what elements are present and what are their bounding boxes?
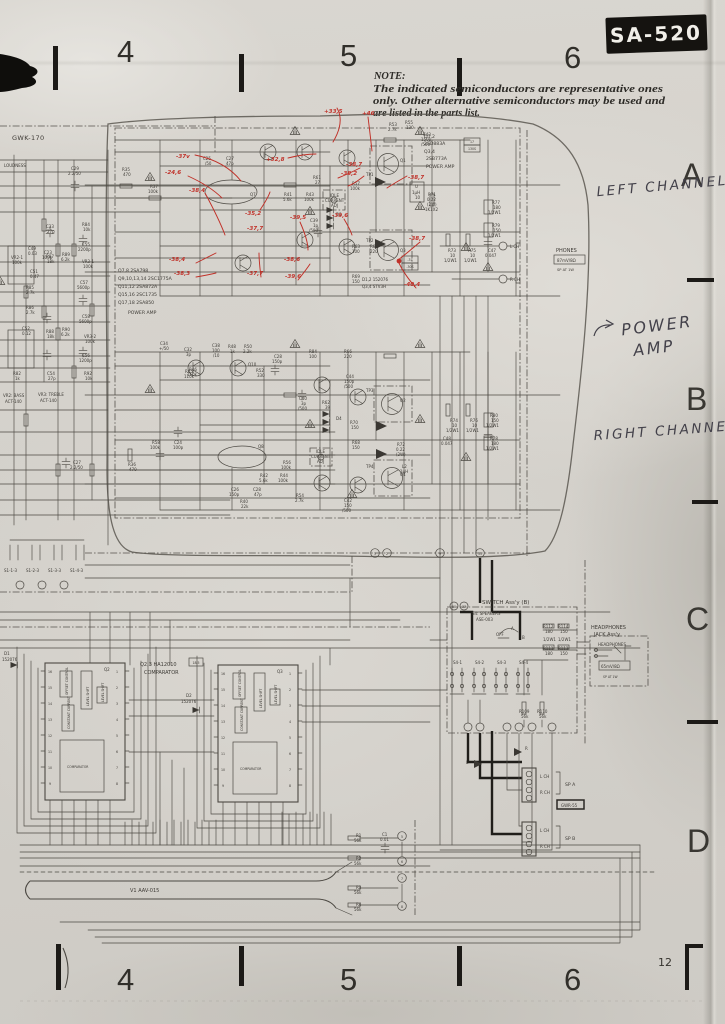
- parts-line: POWER AMP: [128, 310, 157, 316]
- svg-text:(2W): (2W): [396, 452, 406, 457]
- wire-r-label: R: [525, 746, 528, 751]
- svg-text:Q10: Q10: [248, 362, 257, 367]
- svg-text:10: 10: [221, 768, 225, 772]
- ruler-bottom-4: 4: [117, 962, 134, 997]
- svg-text:1/2W1: 1/2W1: [466, 428, 479, 433]
- svg-text:2.2k: 2.2k: [243, 349, 252, 354]
- svg-text:-38,3: -38,3: [174, 271, 190, 277]
- loudness-label: LOUDNESS: [4, 163, 26, 168]
- model-badge: SA-520: [605, 14, 707, 54]
- svg-text:56k: 56k: [354, 838, 362, 843]
- output-phones-linework: [440, 242, 585, 845]
- phones-lch: L CH: [510, 244, 519, 249]
- svg-text:15: 15: [221, 688, 225, 692]
- svg-text:0.047: 0.047: [485, 253, 497, 258]
- svg-text:150: 150: [352, 445, 360, 450]
- phones-title: PHONES: [556, 248, 577, 254]
- switch-pos-a: A: [511, 626, 514, 631]
- svg-text:56k: 56k: [354, 890, 362, 895]
- switch-pos-b: B: [522, 635, 525, 640]
- ref-box-text: 17: [470, 140, 474, 144]
- svg-text:11: 11: [221, 752, 225, 756]
- svg-text:S4-4: S4-4: [519, 660, 529, 665]
- svg-text:27p: 27p: [47, 229, 55, 234]
- d2-part: 152076: [181, 699, 197, 704]
- svg-text:56k: 56k: [354, 861, 362, 866]
- svg-text:1/2W1: 1/2W1: [486, 446, 499, 451]
- ref-box-text: -37: [407, 258, 412, 262]
- svg-text:47p: 47p: [254, 492, 262, 497]
- svg-text:6.2k: 6.2k: [61, 332, 70, 337]
- svg-text:220: 220: [344, 354, 352, 359]
- svg-text:U: U: [415, 184, 418, 189]
- svg-text:D4: D4: [336, 416, 342, 421]
- svg-text:100k: 100k: [150, 445, 161, 450]
- comparator-ref: 18.5: [192, 661, 199, 665]
- display-label: V1 AAV-015: [130, 888, 159, 894]
- parts-line: Q9,10,13,14 2SC1775A: [118, 276, 173, 282]
- svg-text:1/2W1: 1/2W1: [543, 637, 556, 642]
- svg-text:S1-2-3: S1-2-3: [26, 568, 40, 573]
- parts-line: Q17,18 2SA850: [118, 300, 154, 306]
- ic-q2-label: Q2: [104, 667, 110, 672]
- svg-text:9: 9: [222, 784, 224, 788]
- svg-text:/500: /500: [309, 228, 318, 233]
- svg-text:11: 11: [48, 750, 52, 754]
- svg-text:1K1X2: 1K1X2: [425, 207, 438, 212]
- spa-label: SP A: [565, 782, 576, 788]
- hp-title1: HEADPHONES: [591, 625, 626, 631]
- svg-text:100k: 100k: [85, 339, 96, 344]
- parts-line: Q11,12 2SA872A: [118, 284, 158, 290]
- out-block-line: 2SB773A: [426, 156, 448, 162]
- schematic-canvas: 4 5 6 SA-520 4 5 6 12 A B C D: [0, 0, 725, 1024]
- comparator-title1: Q2,3 HA12010: [140, 662, 177, 668]
- svg-text:180: 180: [545, 629, 553, 634]
- svg-text:100: 100: [352, 249, 360, 254]
- svg-text:18k: 18k: [47, 259, 55, 264]
- svg-text:TP1: TP1: [365, 172, 374, 177]
- switch-sub1: S4: SPEAKERS: [472, 611, 501, 616]
- svg-text:39: 39: [325, 405, 331, 410]
- note-line2: only. Other alternative semiconductors m…: [373, 96, 666, 107]
- svg-text:S4-2: S4-2: [475, 660, 485, 665]
- svg-text:TP2: TP2: [365, 238, 374, 243]
- diode-block-line2: Q3,4 STV3H: [362, 284, 386, 289]
- svg-text:4: 4: [289, 720, 291, 724]
- svg-text:S4-3: S4-3: [497, 660, 507, 665]
- svg-text:12: 12: [221, 736, 225, 740]
- svg-text:100k: 100k: [278, 478, 289, 483]
- switch-pos-off: OFF: [496, 632, 504, 637]
- svg-text:-38,4: -38,4: [169, 257, 185, 263]
- svg-text:ADJ: ADJ: [317, 459, 324, 464]
- svg-text:100k: 100k: [281, 465, 292, 470]
- svg-text:9: 9: [49, 782, 51, 786]
- phones-rch: R CH: [510, 277, 520, 282]
- svg-text:+32,8: +32,8: [266, 157, 285, 163]
- d1-ref: D1: [4, 651, 10, 656]
- svg-text:6: 6: [289, 752, 291, 756]
- margin-letter-d: D: [687, 823, 710, 859]
- svg-text:2.2/50: 2.2/50: [68, 171, 81, 176]
- svg-text:56k: 56k: [521, 714, 529, 719]
- svg-text:Q2: Q2: [400, 398, 406, 403]
- svg-text:5: 5: [289, 736, 291, 740]
- svg-text:-37,7: -37,7: [247, 271, 263, 277]
- hp-level: 65mV/8Ω: [601, 664, 620, 669]
- svg-text:/500: /500: [344, 384, 353, 389]
- svg-text:-40,4: -40,4: [404, 282, 420, 288]
- svg-text:110k: 110k: [187, 372, 198, 377]
- svg-text:1k: 1k: [15, 376, 21, 381]
- svg-text:TP4: TP4: [365, 464, 374, 469]
- out-block-line: Q3,4: [424, 149, 435, 155]
- svg-text:/500: /500: [298, 406, 307, 411]
- svg-text:0.12: 0.12: [22, 331, 31, 336]
- svg-text:7: 7: [401, 877, 403, 881]
- ic-block-label: COMPARATOR: [67, 765, 89, 769]
- svg-text:Q3: Q3: [400, 248, 406, 253]
- handwritten-arrow: [594, 320, 613, 336]
- svg-text:+/50: +/50: [159, 346, 169, 351]
- svg-text:56k: 56k: [539, 714, 547, 719]
- svg-text:Q4: Q4: [400, 472, 406, 477]
- svg-text:220: 220: [370, 249, 378, 254]
- ruler-top-6: 6: [564, 40, 581, 75]
- svg-text:470: 470: [123, 172, 131, 177]
- svg-text:1/2W1: 1/2W1: [486, 423, 499, 428]
- ic-block-label: CONSTANT CURRENT: [67, 696, 71, 729]
- svg-text:7: 7: [116, 766, 118, 770]
- svg-text:10k: 10k: [85, 376, 93, 381]
- svg-text:8: 8: [116, 782, 118, 786]
- svg-text:-39,6: -39,6: [332, 213, 348, 219]
- svg-text:1/2W1: 1/2W1: [558, 637, 571, 642]
- vr2-label: VR2: BASS: [3, 393, 25, 398]
- svg-text:5: 5: [116, 734, 118, 738]
- svg-text:150: 150: [351, 425, 359, 430]
- svg-text:2: 2: [289, 688, 291, 692]
- svg-text:/500: /500: [342, 508, 351, 513]
- svg-text:6.2k: 6.2k: [61, 257, 70, 262]
- parts-line: Q7,8 2SA798: [118, 268, 148, 274]
- svg-text:1/2W1: 1/2W1: [464, 258, 477, 263]
- svg-text:22k: 22k: [241, 504, 249, 509]
- svg-text:4: 4: [116, 718, 118, 722]
- ruler-bottom-5: 5: [340, 962, 357, 997]
- svg-text:0.01: 0.01: [380, 837, 389, 842]
- diode-block-line1: D1,2 152076: [362, 277, 388, 282]
- svg-text:S1-1-3: S1-1-3: [4, 568, 18, 573]
- svg-text:TP3: TP3: [365, 388, 374, 393]
- svg-text:5600p: 5600p: [79, 319, 92, 324]
- bottom-ruler: 4 5 6 12: [20, 944, 705, 1001]
- red-voltage-annotations: +33,5+46-37v+32,8-24,6-38,4-38,7-38,2-38…: [165, 109, 425, 288]
- spa-rch: R CH: [540, 790, 550, 795]
- ic-block-label: LEVEL SHIFT: [86, 687, 90, 706]
- svg-text:5600p: 5600p: [77, 285, 90, 290]
- svg-text:100k: 100k: [12, 260, 23, 265]
- svg-text:2.7k: 2.7k: [26, 310, 35, 315]
- margin-letter-c: C: [686, 601, 709, 637]
- power-amp-left-channel: [0, 127, 560, 297]
- svg-text:1/2W1: 1/2W1: [444, 258, 457, 263]
- parts-line: Q15,16 2SC1735: [118, 292, 157, 298]
- scanned-schematic-page: 4 5 6 SA-520 4 5 6 12 A B C D: [0, 0, 725, 1024]
- ref-box-text: 130S: [468, 147, 476, 151]
- svg-text:100k: 100k: [148, 189, 159, 194]
- svg-text:47p: 47p: [226, 161, 234, 166]
- ruler-bottom-6: 6: [564, 962, 581, 997]
- svg-text:10: 10: [415, 195, 421, 200]
- svg-text:56k: 56k: [354, 907, 362, 912]
- d1-part: 152076: [2, 657, 18, 662]
- svg-text:2.7k: 2.7k: [295, 498, 304, 503]
- svg-text:330: 330: [257, 373, 265, 378]
- ref-box-text: -30S: [406, 265, 413, 269]
- svg-text:15: 15: [48, 686, 52, 690]
- svg-text:0.047: 0.047: [441, 441, 453, 446]
- svg-text:5.6k: 5.6k: [259, 478, 268, 483]
- ic-q3-label: Q3: [277, 669, 283, 674]
- svg-text:16: 16: [221, 672, 225, 676]
- svg-text:180: 180: [545, 651, 553, 656]
- ic-block-label: CONSTANT CURRENT: [240, 698, 244, 731]
- svg-text:11: 11: [478, 552, 482, 556]
- svg-text:6: 6: [401, 860, 403, 864]
- svg-text:3: 3: [116, 702, 118, 706]
- note-line1: The indicated semiconductors are represe…: [373, 84, 663, 95]
- svg-text:/10: /10: [213, 353, 220, 358]
- svg-text:-38,7: -38,7: [346, 162, 362, 168]
- svg-text:2.7k: 2.7k: [388, 127, 397, 132]
- svg-text:1/2W1: 1/2W1: [446, 428, 459, 433]
- ruler-top-4: 4: [117, 34, 134, 69]
- vr2-code: ACT-140: [5, 399, 22, 404]
- speaker-code: GWR-55: [561, 803, 578, 808]
- svg-text:-38,7: -38,7: [409, 236, 425, 242]
- hp-inner: HEADPHONES: [598, 642, 626, 647]
- note-line3: are listed in the parts list.: [373, 108, 480, 119]
- svg-text:150p: 150p: [229, 492, 240, 497]
- svg-text:/50: /50: [205, 161, 212, 166]
- phones-level: 87mV/8Ω: [557, 258, 576, 263]
- spb-lch: L CH: [540, 828, 549, 833]
- spb-label: SP B: [565, 836, 575, 842]
- spb-rch: R CH: [540, 844, 550, 849]
- svg-text:100: 100: [309, 354, 317, 359]
- svg-text:S1-4-3: S1-4-3: [70, 568, 84, 573]
- svg-text:0.03: 0.03: [28, 251, 37, 256]
- svg-text:8: 8: [289, 784, 291, 788]
- svg-text:/500: /500: [421, 142, 430, 147]
- svg-text:-35,2: -35,2: [245, 211, 261, 217]
- svg-text:10: 10: [48, 766, 52, 770]
- svg-text:3p: 3p: [186, 352, 192, 357]
- svg-text:5.6k: 5.6k: [283, 197, 292, 202]
- svg-text:S1-3-3: S1-3-3: [48, 568, 62, 573]
- svg-text:1/2W1: 1/2W1: [488, 210, 501, 215]
- svg-text:-24,6: -24,6: [165, 170, 181, 176]
- svg-text:1: 1: [116, 670, 118, 674]
- pencil-outline-power-amp: [106, 114, 589, 557]
- note-title: NOTE:: [373, 71, 405, 82]
- svg-text:3: 3: [374, 552, 376, 556]
- hp-cond: SP AT 1W: [603, 675, 618, 679]
- svg-text:-38,6: -38,6: [284, 257, 300, 263]
- svg-text:-38,4: -38,4: [189, 188, 205, 194]
- svg-text:7: 7: [289, 768, 291, 772]
- component-labels: C292.2/50R35470R37100kC25/50C2747pR415.6…: [4, 120, 571, 912]
- svg-text:+33,5: +33,5: [324, 109, 343, 115]
- svg-text:ADJ: ADJ: [331, 203, 338, 208]
- switch-title: SWITCH Ass'y (B): [482, 600, 529, 606]
- svg-text:10k: 10k: [83, 227, 91, 232]
- svg-text:130: 130: [406, 125, 414, 130]
- ic-block-label: LEVEL SHIFT: [101, 683, 105, 702]
- svg-text:Q1: Q1: [400, 158, 406, 163]
- svg-text:150p: 150p: [272, 359, 283, 364]
- svg-text:13: 13: [48, 718, 52, 722]
- comparator-title2: COMPARATOR: [144, 670, 179, 676]
- svg-text:100p: 100p: [173, 445, 184, 450]
- margin-letters: A B C D: [681, 157, 718, 859]
- svg-text:2200p: 2200p: [78, 247, 91, 252]
- svg-text:1/2W1: 1/2W1: [488, 233, 501, 238]
- svg-text:-38,7: -38,7: [408, 175, 424, 181]
- svg-text:18k: 18k: [47, 334, 55, 339]
- model-badge-text: SA-520: [610, 20, 703, 47]
- svg-text:-39,5: -39,5: [290, 215, 306, 221]
- svg-text:150: 150: [560, 651, 568, 656]
- corner-crop-mark: [687, 946, 703, 990]
- svg-text:5: 5: [401, 835, 403, 839]
- svg-text:150: 150: [352, 279, 360, 284]
- handwritten-left-channel: LEFT CHANNEL: [596, 173, 725, 200]
- svg-text:14: 14: [221, 704, 225, 708]
- ic-block-label: OFFSET CONTROL: [238, 669, 242, 697]
- svg-text:2.7k: 2.7k: [26, 290, 35, 295]
- svg-text:-39,6: -39,6: [285, 274, 301, 280]
- svg-text:27: 27: [315, 180, 321, 185]
- svg-text:0.47: 0.47: [30, 274, 39, 279]
- svg-text:3: 3: [289, 704, 291, 708]
- svg-text:Q7: Q7: [250, 192, 256, 197]
- ruler-top-5: 5: [340, 38, 357, 73]
- svg-text:27p: 27p: [48, 376, 56, 381]
- svg-text:-37v: -37v: [176, 154, 190, 160]
- ic-block-label: OFFSET CONTROL: [65, 667, 69, 695]
- d2-ref: D2: [186, 693, 192, 698]
- out-block-line: POWER AMP: [426, 164, 455, 170]
- svg-text:150: 150: [560, 629, 568, 634]
- svg-text:+46: +46: [362, 111, 375, 117]
- margin-letter-b: B: [686, 381, 707, 417]
- svg-text:2: 2: [116, 686, 118, 690]
- svg-text:12: 12: [48, 734, 52, 738]
- svg-text:50: 50: [452, 605, 456, 609]
- speaker-terminals: [440, 731, 584, 856]
- svg-text:14: 14: [48, 702, 52, 706]
- hp-title2: JACK Ass'y: [593, 632, 620, 638]
- note-block: NOTE: The indicated semiconductors are r…: [373, 71, 666, 119]
- parts-list: Q7,8 2SA798 Q9,10,13,14 2SC1775A Q11,12 …: [118, 268, 173, 316]
- svg-text:100k: 100k: [350, 186, 361, 191]
- handwritten-right-channel: RIGHT CHANNEL: [593, 418, 725, 444]
- svg-text:-37,7: -37,7: [247, 226, 263, 232]
- svg-text:16: 16: [48, 670, 52, 674]
- phones-cond: SP AT 1W: [557, 268, 574, 272]
- svg-text:13: 13: [221, 720, 225, 724]
- board-label: GWK-170: [12, 134, 45, 142]
- svg-text:2.2/50: 2.2/50: [70, 465, 83, 470]
- svg-text:2: 2: [386, 552, 388, 556]
- svg-text:470: 470: [129, 467, 137, 472]
- handwritten-power: POWER: [620, 312, 694, 340]
- svg-text:100k: 100k: [304, 197, 315, 202]
- ic-block-label: COMPARATOR: [240, 767, 262, 771]
- ink-blot: [0, 54, 38, 92]
- svg-text:Q8: Q8: [258, 444, 264, 449]
- svg-text:1200p: 1200p: [79, 358, 92, 363]
- svg-text:9: 9: [439, 552, 441, 556]
- switch-sub2: ASE-003: [476, 617, 493, 622]
- spa-lch: L CH: [540, 774, 549, 779]
- svg-text:1k: 1k: [230, 349, 236, 354]
- page-number: 12: [658, 956, 672, 969]
- ic-block-label: LEVEL SHIFT: [259, 689, 263, 708]
- pin-number-labels: 3291150375678161514131211109123456781615…: [48, 552, 482, 909]
- svg-text:1: 1: [289, 672, 291, 676]
- svg-text:8: 8: [401, 905, 403, 909]
- svg-text:6: 6: [116, 750, 118, 754]
- vr3-label: VR3: TREBLE: [38, 392, 64, 397]
- svg-text:100k: 100k: [83, 264, 94, 269]
- svg-text:37: 37: [462, 605, 466, 609]
- ic-block-label: LEVEL SHIFT: [274, 685, 278, 704]
- handwritten-amp: AMP: [631, 336, 676, 360]
- svg-text:-38,2: -38,2: [341, 171, 357, 177]
- vr3-code: ACT-140: [40, 398, 57, 403]
- printed-labels: GWK-170 LOUDNESS Q7,8 2SA798 Q9,10,13,14…: [2, 134, 626, 894]
- svg-text:S4-1: S4-1: [453, 660, 463, 665]
